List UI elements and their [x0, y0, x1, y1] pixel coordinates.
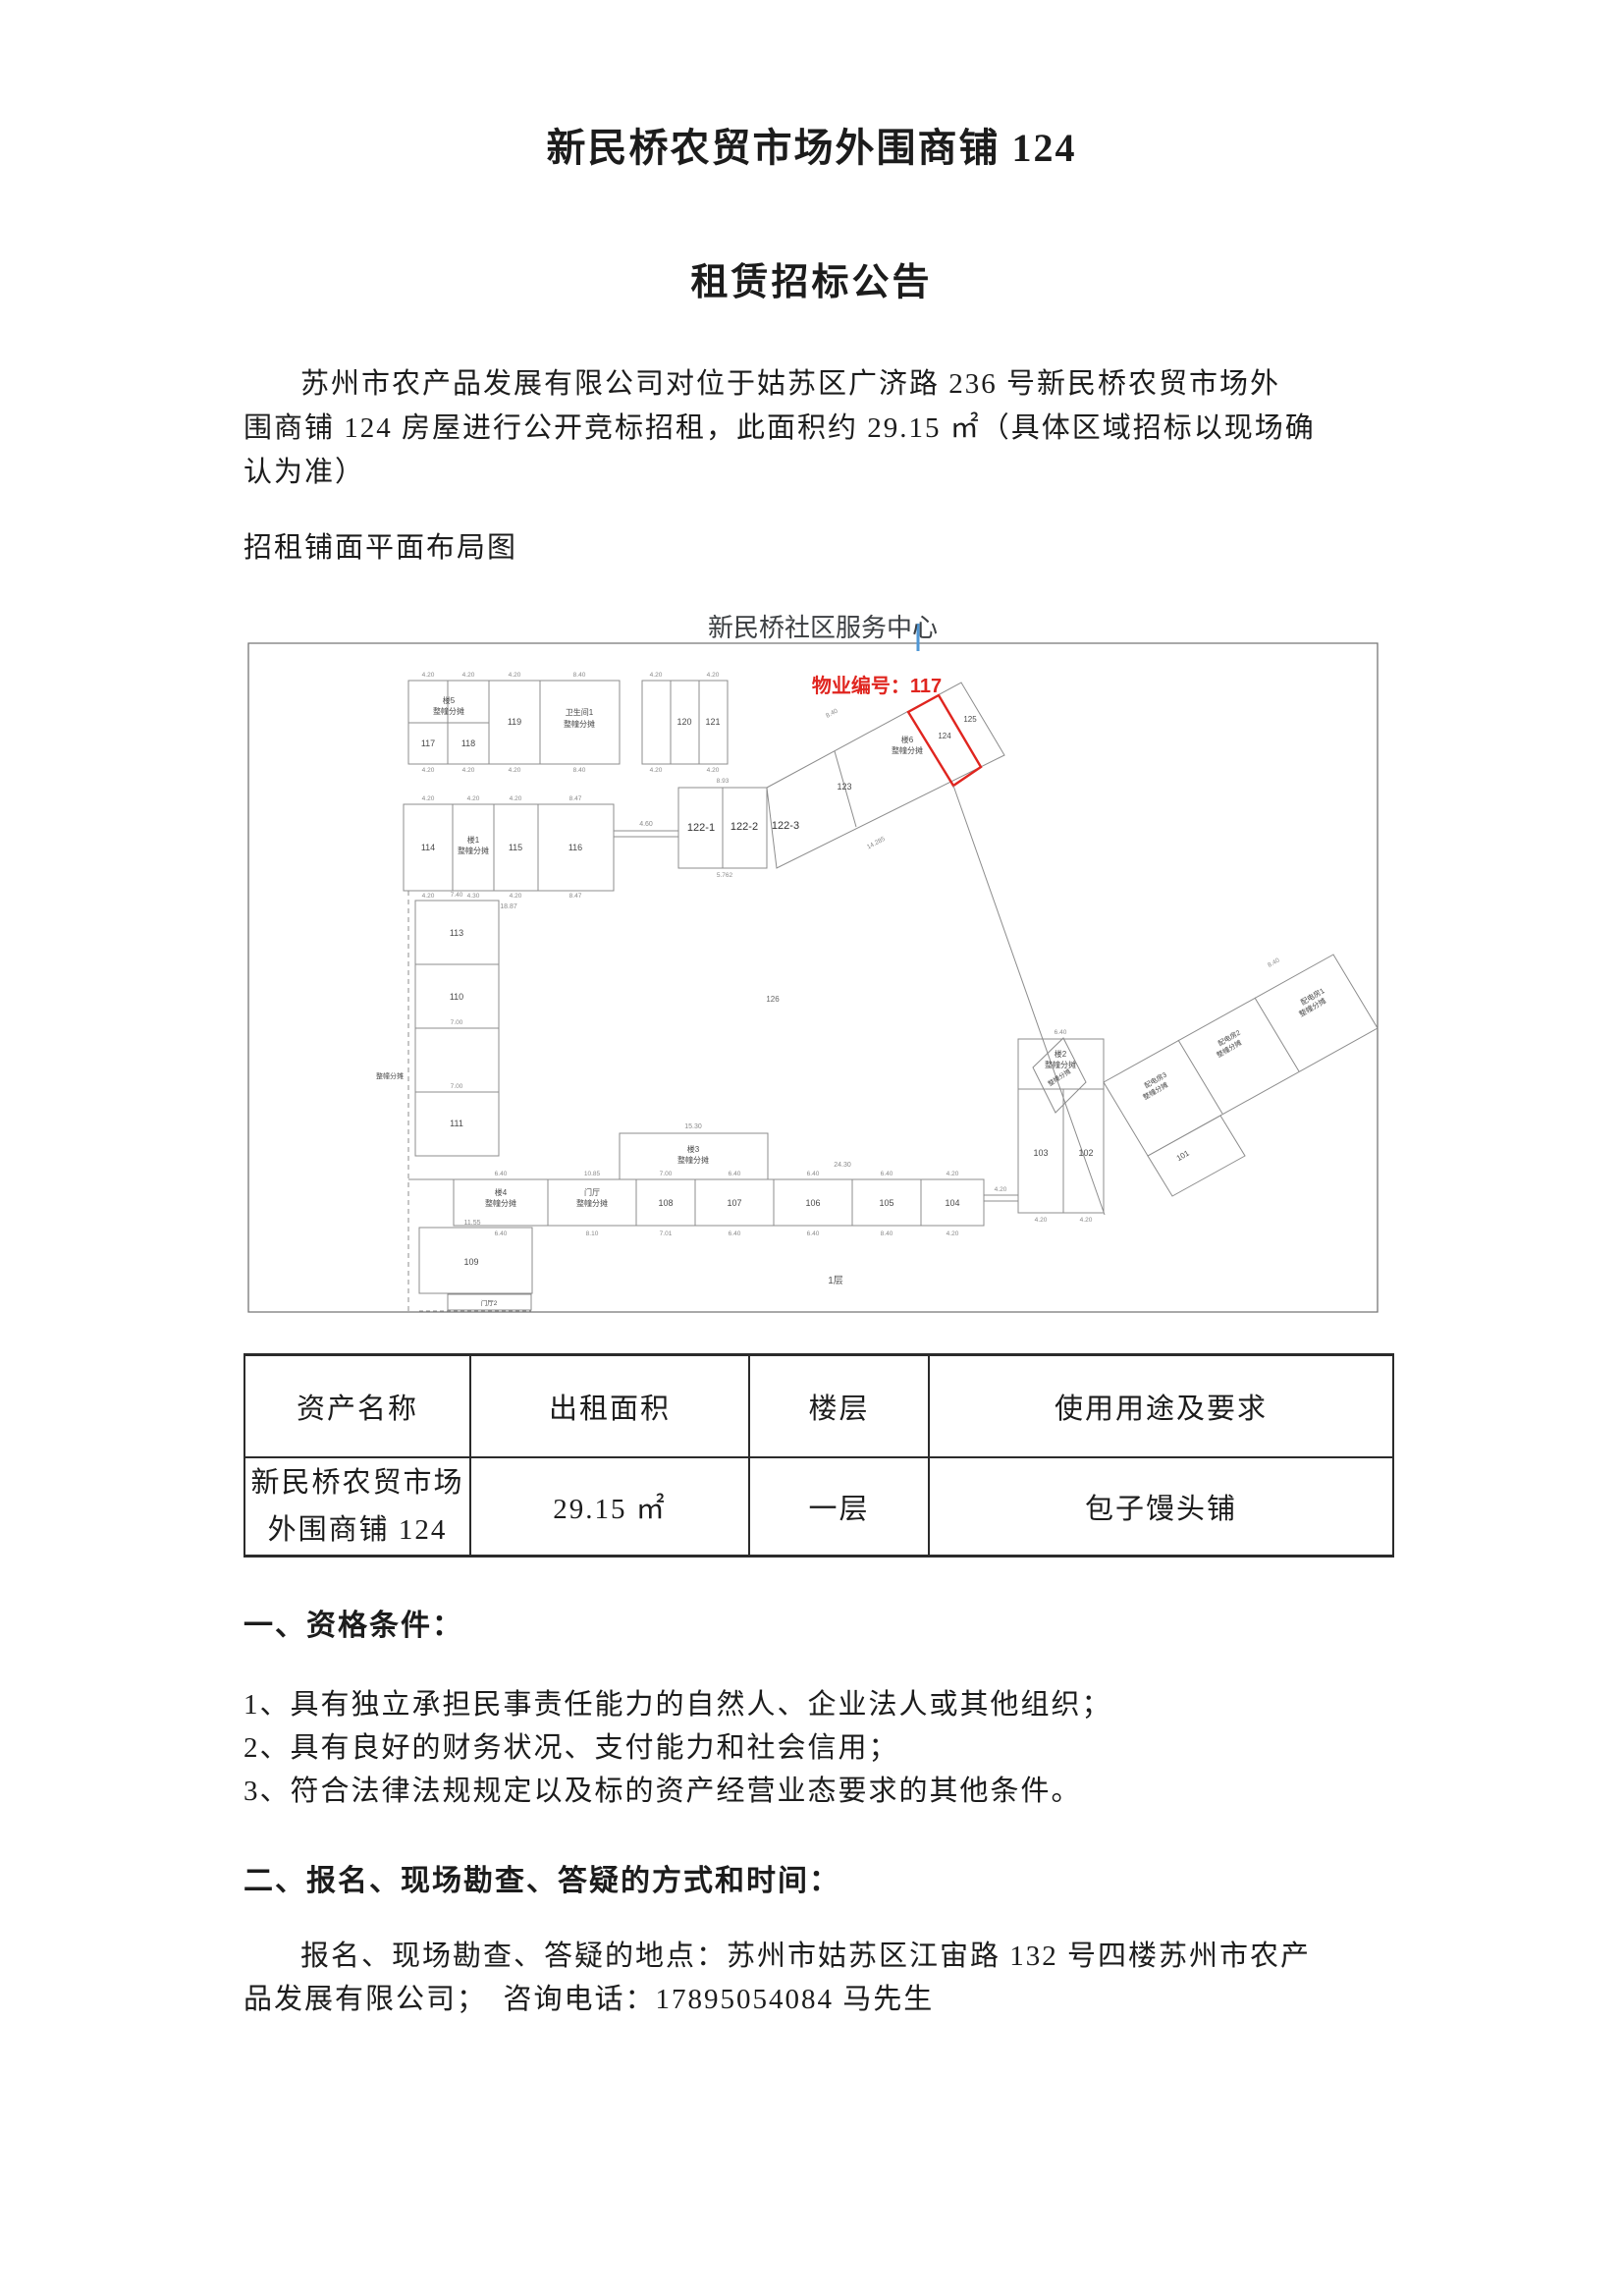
plan-label: 104 [945, 1198, 959, 1208]
plan-label: 4.20 [510, 893, 522, 900]
plan-label: 整幢分摊 [576, 1198, 608, 1208]
plan-label: 4.30 [467, 893, 480, 900]
intro-paragraph: 苏州市农产品发展有限公司对位于姑苏区广济路 236 号新民桥农贸市场外 围商铺 … [243, 362, 1380, 495]
plan-label: 4.20 [422, 795, 435, 802]
plan-label: 126 [766, 995, 780, 1004]
plan-label: 4.20 [467, 795, 480, 802]
plan-label: 4.20 [707, 767, 720, 774]
plan-label: 122-2 [730, 821, 758, 833]
plan-label: 7.00 [660, 1171, 673, 1177]
plan-label: 8.40 [881, 1230, 893, 1237]
registration-paragraph: 报名、现场勘查、答疑的地点：苏州市姑苏区江宙路 132 号四楼苏州市农产 品发展… [243, 1935, 1380, 2021]
plan-label: 4.20 [509, 672, 521, 679]
document-content: 新民桥农贸市场外围商铺 124 租赁招标公告 苏州市农产品发展有限公司对位于姑苏… [243, 0, 1380, 2021]
plan-label: 101 [1175, 1148, 1192, 1163]
plan-label: 6.40 [807, 1230, 820, 1237]
plan-label: 整幢分摊 [1046, 1066, 1072, 1088]
header-asset-name: 资产名称 [244, 1355, 470, 1458]
plan-label: 楼6 [901, 735, 914, 744]
plan-label: 18.87 [500, 903, 517, 910]
plan-label: 楼3 [687, 1144, 700, 1154]
plan-label: 6.40 [495, 1171, 508, 1177]
plan-label: 121 [705, 717, 720, 727]
plan-label: 119 [508, 717, 521, 727]
plan-label: 14.285 [866, 836, 887, 851]
plan-label: 8.10 [586, 1230, 599, 1237]
plan-label: 107 [727, 1198, 741, 1208]
plan-label: 105 [879, 1198, 893, 1208]
plan-label: 8.93 [717, 778, 730, 785]
header-floor: 楼层 [749, 1355, 929, 1458]
plan-label: 4.20 [650, 672, 663, 679]
plan-label: 8.40 [1267, 957, 1281, 969]
plan-label: 整幢分摊 [892, 745, 923, 755]
plan-label: 6.40 [495, 1230, 508, 1237]
plan-label: 122-1 [687, 822, 715, 834]
plan-label: 8.47 [569, 893, 582, 900]
plan-label: 106 [805, 1198, 820, 1208]
intro-line: 认为准） [243, 451, 1380, 495]
list-item: 1、具有独立承担民事责任能力的自然人、企业法人或其他组织； [243, 1683, 1380, 1726]
plan-label: 6.40 [1055, 1029, 1067, 1036]
figure-caption: 招租铺面平面布局图 [243, 524, 1380, 566]
plan-label: 整幢分摊 [458, 846, 489, 855]
plan-label: 123 [837, 782, 851, 792]
plan-label: 4.20 [422, 672, 435, 679]
floor-plan: 新民桥社区服务中心物业编号：117楼5整幢分摊117118119卫生间1整幢分摊… [243, 606, 1382, 1328]
plan-title: 新民桥社区服务中心 [708, 614, 938, 642]
plan-label: 门厅 [584, 1187, 600, 1197]
section-heading-registration: 二、报名、现场勘查、答疑的方式和时间： [243, 1856, 1380, 1899]
plan-label: 6.40 [807, 1171, 820, 1177]
plan-label: 102 [1078, 1148, 1093, 1158]
intro-line: 围商铺 124 房屋进行公开竞标招租，此面积约 29.15 ㎡（具体区域招标以现… [243, 407, 1380, 451]
intro-line: 苏州市农产品发展有限公司对位于姑苏区广济路 236 号新民桥农贸市场外 [243, 362, 1380, 407]
plan-label: 124 [938, 732, 951, 740]
plan-label: 120 [676, 717, 691, 727]
plan-label: 4.20 [422, 893, 435, 900]
plan-line [1178, 1040, 1222, 1114]
plan-label: 楼5 [443, 695, 456, 705]
plan-label: 7.40 [451, 892, 463, 899]
plan-label: 6.40 [729, 1230, 741, 1237]
plan-label: 10.85 [584, 1171, 601, 1177]
plan-label: 108 [658, 1198, 673, 1208]
plan-label: 111 [450, 1119, 463, 1128]
plan-label: 4.20 [462, 672, 475, 679]
plan-label: 8.40 [573, 672, 586, 679]
plan-label: 109 [463, 1257, 478, 1267]
plan-label: 门厅2 [481, 1298, 498, 1307]
page-subtitle: 租赁招标公告 [243, 251, 1380, 305]
plan-label: 整幢分摊 [1045, 1060, 1076, 1069]
plan-label: 115 [509, 843, 522, 852]
page-title: 新民桥农贸市场外围商铺 124 [243, 0, 1380, 173]
plan-label: 8.47 [569, 795, 582, 802]
plan-label: 整幢分摊 [433, 706, 464, 716]
plan-label: 4.20 [1080, 1217, 1093, 1224]
plan-line [1255, 998, 1299, 1071]
plan-label: 4.20 [509, 767, 521, 774]
property-number-label: 物业编号：117 [812, 674, 942, 697]
plan-label: 4.20 [995, 1186, 1007, 1193]
plan-label: 楼4 [495, 1187, 508, 1197]
floor-plan-svg: 新民桥社区服务中心物业编号：117楼5整幢分摊117118119卫生间1整幢分摊… [243, 606, 1382, 1328]
plan-label: 4.20 [650, 767, 663, 774]
paragraph-line: 报名、现场勘查、答疑的地点：苏州市姑苏区江宙路 132 号四楼苏州市农产 [243, 1935, 1380, 1978]
plan-label: 11.55 [464, 1220, 481, 1227]
plan-label: 122-3 [772, 820, 799, 832]
plan-label: 1层 [828, 1275, 843, 1286]
plan-label: 6.40 [881, 1171, 893, 1177]
plan-label: 103 [1033, 1148, 1048, 1158]
header-rent-area: 出租面积 [470, 1355, 749, 1458]
plan-label: 整幢分摊 [677, 1155, 709, 1165]
plan-label: 4.20 [1035, 1217, 1048, 1224]
plan-label: 4.20 [510, 795, 522, 802]
plan-label: 楼1 [467, 835, 480, 845]
cell-rent-area: 29.15 ㎡ [470, 1457, 749, 1557]
plan-label: 8.40 [825, 707, 839, 719]
plan-label: 整幢分摊 [564, 719, 595, 729]
plan-label: 114 [421, 843, 435, 852]
plan-label: 15.30 [684, 1123, 702, 1130]
plan-label: 7.00 [451, 1019, 463, 1026]
plan-label: 6.40 [729, 1171, 741, 1177]
plan-label: 8.40 [573, 767, 586, 774]
plan-label: 卫生间1 [566, 707, 594, 717]
plan-label: 整幢分摊 [485, 1198, 516, 1208]
paragraph-line: 品发展有限公司； 咨询电话：17895054084 马先生 [243, 1978, 1380, 2021]
table-header-row: 资产名称 出租面积 楼层 使用用途及要求 [244, 1355, 1393, 1458]
section-heading-qualifications: 一、资格条件： [243, 1601, 1380, 1644]
plan-label: 113 [450, 928, 463, 938]
plan-label: 4.20 [947, 1171, 959, 1177]
plan-shape [1104, 955, 1378, 1156]
cell-floor: 一层 [749, 1457, 929, 1557]
plan-label: 24.30 [834, 1162, 851, 1169]
plan-label: 7.00 [451, 1083, 463, 1090]
header-usage: 使用用途及要求 [929, 1355, 1393, 1458]
plan-label: 4.20 [462, 767, 475, 774]
plan-label: 125 [963, 715, 977, 724]
plan-shape [454, 1179, 984, 1226]
qualification-list: 1、具有独立承担民事责任能力的自然人、企业法人或其他组织； 2、具有良好的财务状… [243, 1683, 1380, 1813]
plan-label: 7.01 [660, 1230, 673, 1237]
plan-label: 整幢分摊 [376, 1071, 404, 1080]
list-item: 2、具有良好的财务状况、支付能力和社会信用； [243, 1726, 1380, 1770]
list-item: 3、符合法律法规规定以及标的资产经营业态要求的其他条件。 [243, 1770, 1380, 1813]
document-page: 新民桥农贸市场外围商铺 124 租赁招标公告 苏州市农产品发展有限公司对位于姑苏… [0, 0, 1623, 2296]
plan-label: 4.20 [947, 1230, 959, 1237]
plan-border [248, 643, 1378, 1312]
plan-shape [1148, 1116, 1245, 1196]
plan-label: 117 [421, 738, 435, 748]
plan-label: 118 [461, 738, 475, 748]
plan-label: 4.20 [707, 672, 720, 679]
plan-label: 4.60 [639, 821, 653, 828]
plan-label: 楼2 [1055, 1049, 1067, 1059]
cell-asset-name: 新民桥农贸市场 外围商铺 124 [244, 1457, 470, 1557]
plan-label: 5.762 [717, 872, 733, 879]
cell-usage: 包子馒头铺 [929, 1457, 1393, 1557]
plan-label: 116 [568, 843, 582, 852]
table-row: 新民桥农贸市场 外围商铺 124 29.15 ㎡ 一层 包子馒头铺 [244, 1457, 1393, 1557]
plan-label: 110 [450, 992, 463, 1002]
asset-table: 资产名称 出租面积 楼层 使用用途及要求 新民桥农贸市场 外围商铺 124 29… [243, 1353, 1394, 1558]
plan-label: 4.20 [422, 767, 435, 774]
